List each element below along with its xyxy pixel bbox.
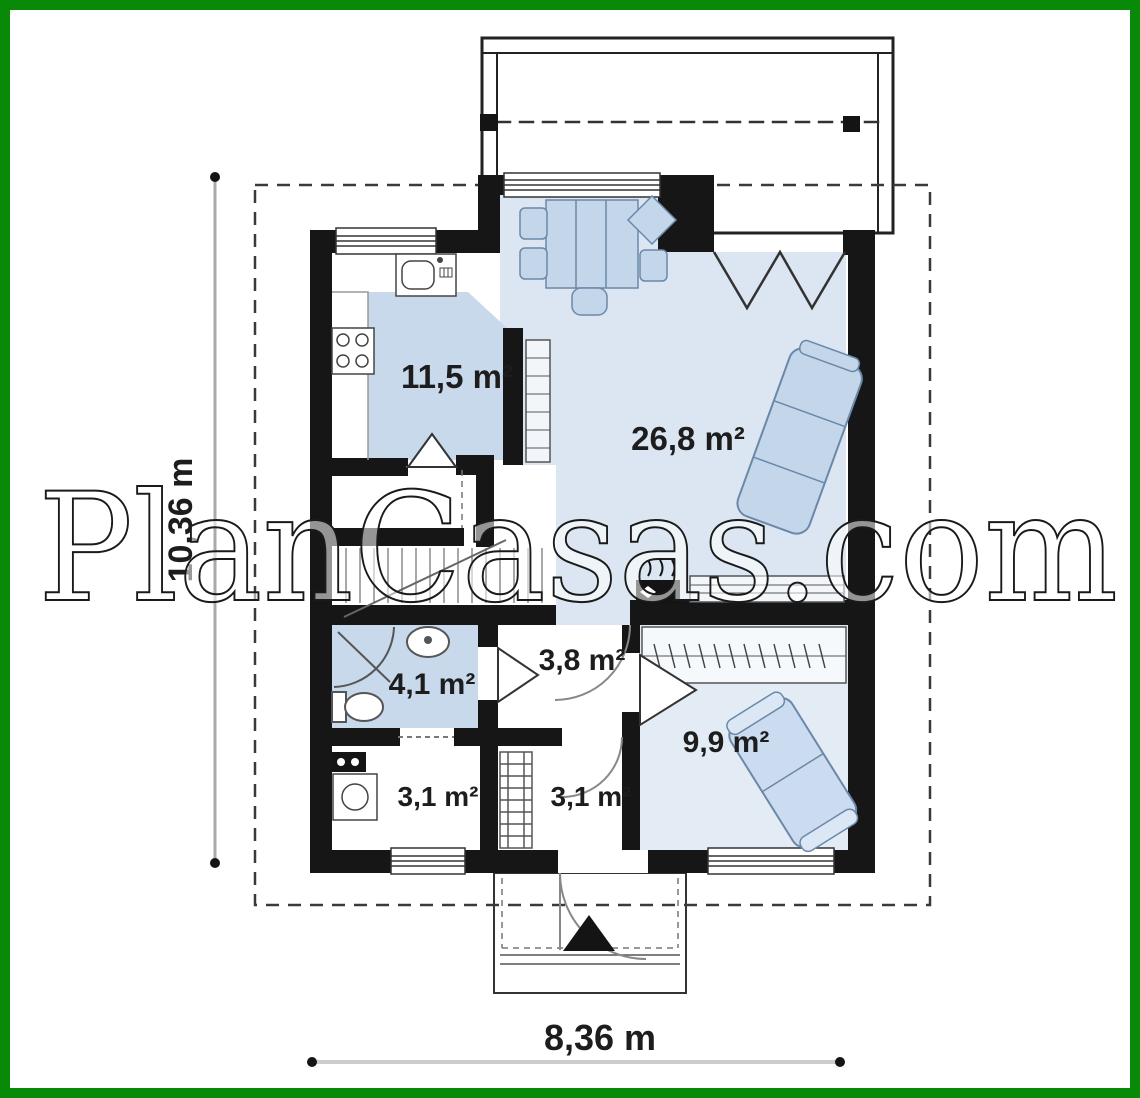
terrace-post-icon: [843, 116, 860, 132]
entrance-opening: [558, 850, 648, 873]
utility-window: [391, 848, 465, 874]
bedroom-area-label: 9,9 m²: [683, 726, 770, 759]
chair: [520, 208, 547, 239]
bedroom-window: [708, 848, 834, 874]
utility-area-label: 3,1 m²: [398, 781, 479, 812]
living-area-label: 26,8 m²: [631, 420, 745, 457]
stove-icon: [332, 328, 374, 374]
vestibule-area-label: 3,1 m²: [551, 781, 632, 812]
chair: [520, 248, 547, 279]
washing-machine-icon: [333, 774, 377, 820]
width-dimension-label: 8,36 m: [544, 1017, 656, 1058]
stool: [572, 288, 607, 315]
floor-plan-page: 11,5 m² 26,8 m² 4,1 m² 3,8 m² 9,9 m² 3,1…: [0, 0, 1140, 1098]
watermark: PlanCasas.com: [38, 462, 1118, 636]
dining-window: [504, 173, 660, 197]
kitchen-window: [336, 228, 436, 254]
chair: [640, 250, 667, 281]
bathroom-area-label: 4,1 m²: [389, 668, 476, 701]
kitchen-area-label: 11,5 m²: [401, 358, 513, 395]
boiler-icon: [332, 752, 366, 772]
shelf-unit: [526, 340, 550, 462]
floor-plan-canvas: 11,5 m² 26,8 m² 4,1 m² 3,8 m² 9,9 m² 3,1…: [0, 0, 1140, 1098]
terrace-post-icon: [480, 114, 498, 131]
sink-icon: [396, 254, 456, 296]
wall-kitchen-living: [503, 328, 523, 465]
toilet-icon: [332, 692, 383, 722]
dining-table: [546, 200, 638, 288]
hall-area-label: 3,8 m²: [539, 644, 626, 677]
vestibule-wardrobe-icon: [500, 752, 532, 848]
